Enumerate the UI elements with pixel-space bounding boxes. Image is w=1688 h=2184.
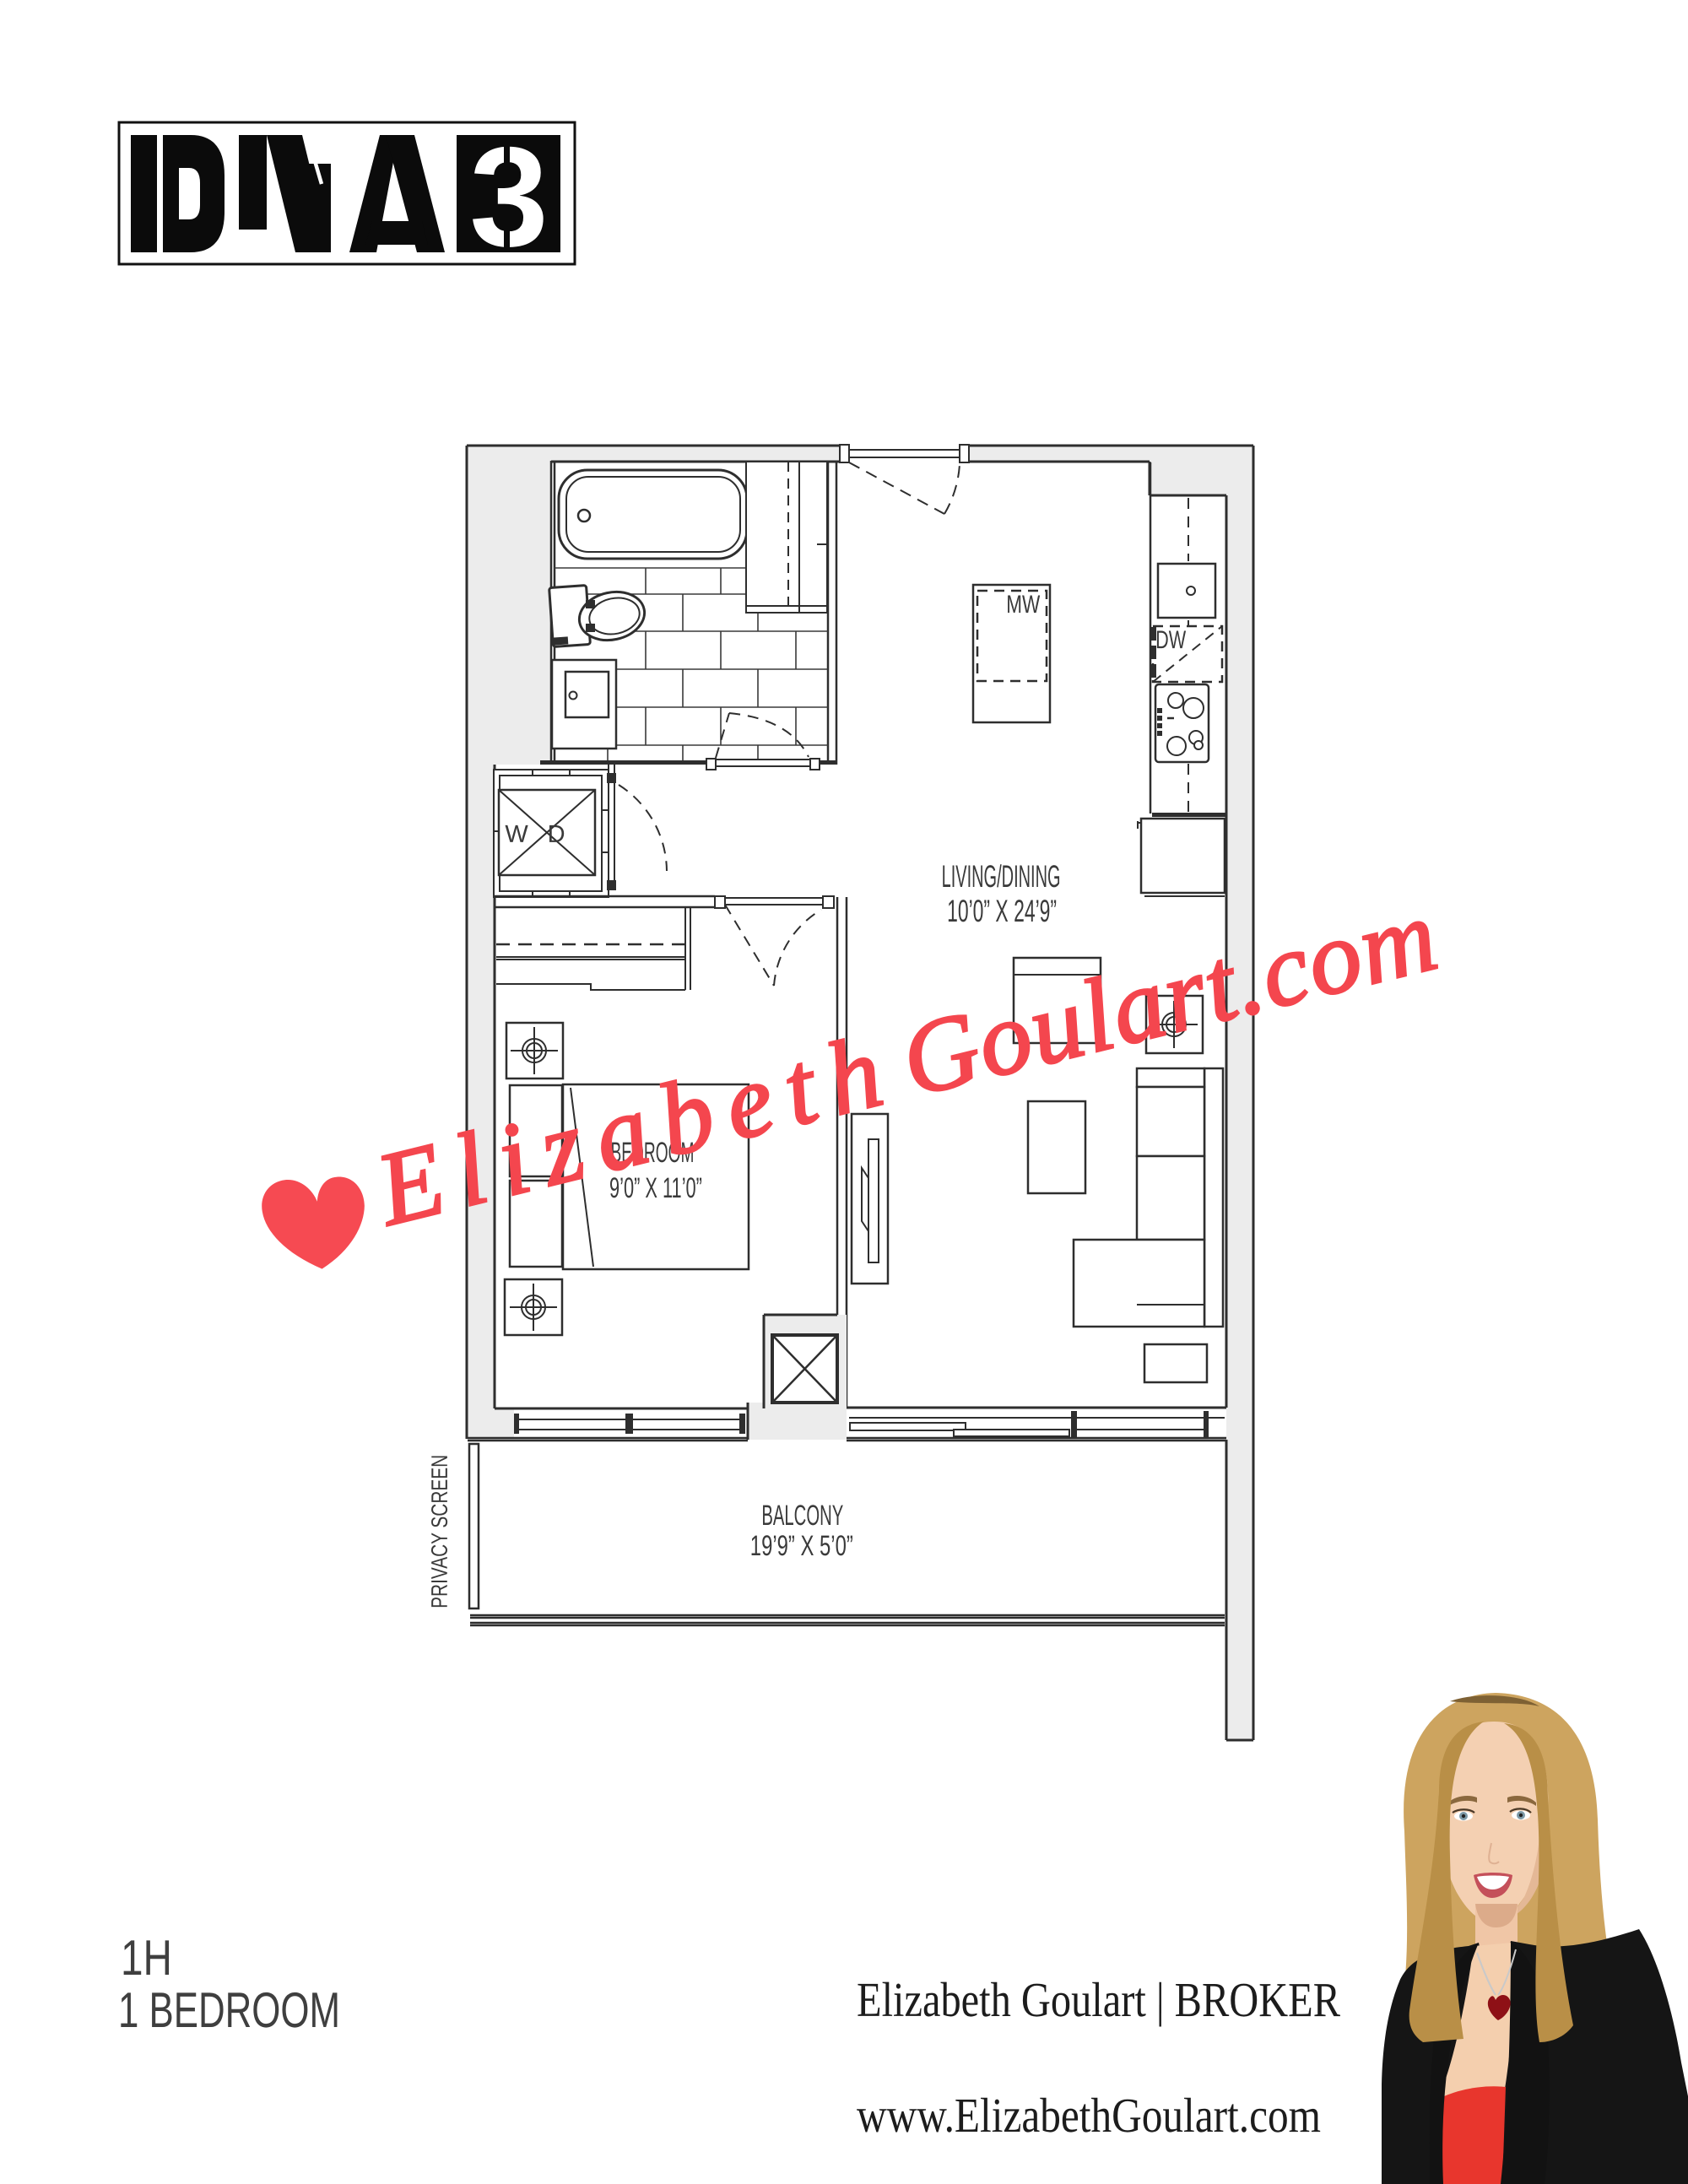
svg-text:19’9” X 5’0”: 19’9” X 5’0” <box>750 1530 853 1562</box>
svg-text:BALCONY: BALCONY <box>761 1500 843 1532</box>
svg-text:10’0” X 24’9”: 10’0” X 24’9” <box>947 894 1057 928</box>
svg-text:MW: MW <box>1006 591 1041 619</box>
svg-text:Elizabeth Goulart | BROKER: Elizabeth Goulart | BROKER <box>857 1972 1340 2027</box>
svg-text:W: W <box>505 821 528 848</box>
svg-text:1 BEDROOM: 1 BEDROOM <box>118 1982 340 2038</box>
svg-text:DW: DW <box>1155 626 1187 654</box>
svg-text:LIVING/DINING: LIVING/DINING <box>942 859 1061 894</box>
svg-text:PRIVACY SCREEN: PRIVACY SCREEN <box>427 1455 452 1608</box>
svg-text:D: D <box>548 821 565 848</box>
svg-text:www.ElizabethGoulart.com: www.ElizabethGoulart.com <box>857 2088 1321 2143</box>
svg-text:1H: 1H <box>121 1930 172 1986</box>
